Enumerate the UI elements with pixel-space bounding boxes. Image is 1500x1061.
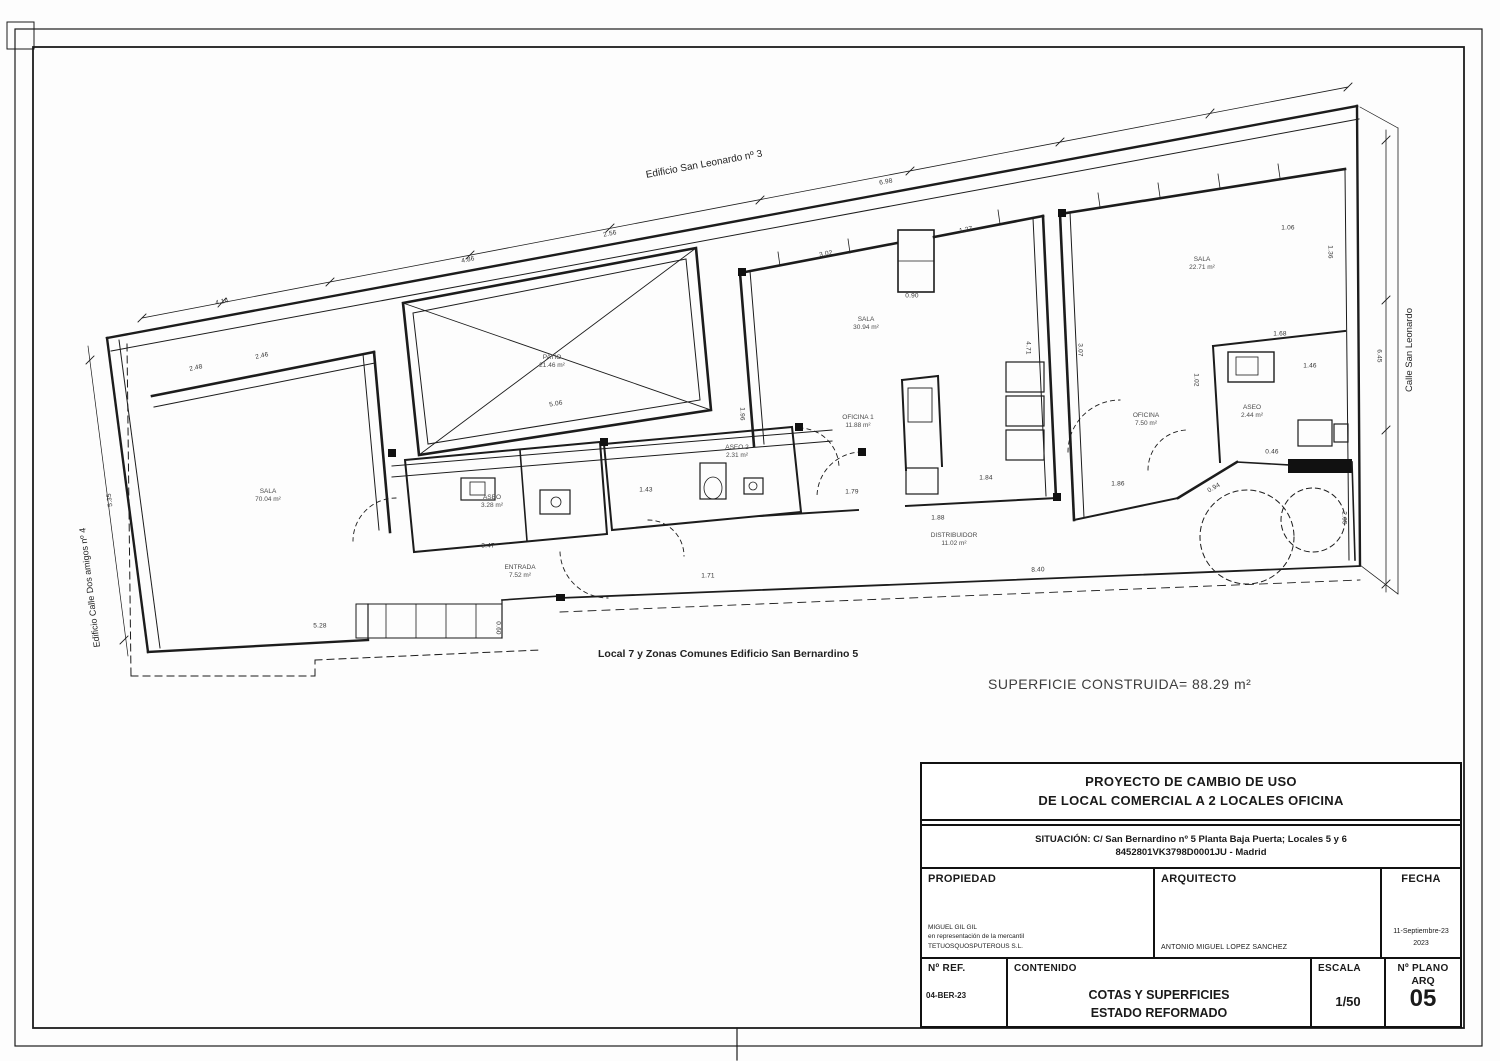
contenido-cell: CONTENIDO COTAS Y SUPERFICIES ESTADO REF… xyxy=(1008,959,1312,1026)
dimension-label: 1.86 xyxy=(1111,481,1124,488)
room-name: ASEO 2 xyxy=(725,444,748,452)
room-label: PATIO 21.46 m² xyxy=(539,354,565,370)
contenido-label: CONTENIDO xyxy=(1014,963,1304,974)
room-name: OFICINA 1 xyxy=(842,414,873,422)
arquitecto-label: ARQUITECTO xyxy=(1161,873,1374,885)
dimension-label: 6.45 xyxy=(1376,349,1383,362)
room-label: SALA 70.04 m² xyxy=(255,488,281,504)
room-name: OFICINA xyxy=(1133,412,1159,420)
room-name: SALA xyxy=(853,316,879,324)
title-block: PROYECTO DE CAMBIO DE USO DE LOCAL COMER… xyxy=(920,762,1462,1028)
room-label: ENTRADA 7.52 m² xyxy=(504,564,535,580)
propiedad-details: MIGUEL GIL GIL en representación de la m… xyxy=(928,923,1024,952)
room-area: 11.88 m² xyxy=(842,422,873,430)
situacion-line1: SITUACIÓN: C/ San Bernardino nº 5 Planta… xyxy=(1035,834,1347,845)
street-right-label: Calle San Leonardo xyxy=(1404,308,1415,392)
title-block-situacion: SITUACIÓN: C/ San Bernardino nº 5 Planta… xyxy=(922,826,1460,869)
room-label: OFICINA 7.50 m² xyxy=(1133,412,1159,428)
drawing-sheet: Edificio San Leonardo nº 3 Calle San Leo… xyxy=(0,0,1500,1061)
fecha-line2: 2023 xyxy=(1382,938,1460,949)
plano-cell: Nº PLANO ARQ 05 xyxy=(1386,959,1460,1026)
propiedad-line1: MIGUEL GIL GIL xyxy=(928,923,1024,933)
dimension-label: 3.47 xyxy=(481,543,494,550)
escala-value: 1/50 xyxy=(1318,994,1378,1009)
ref-cell: Nº REF. 04-BER-23 xyxy=(922,959,1008,1026)
room-name: ASEO xyxy=(1241,404,1263,412)
room-area: 21.46 m² xyxy=(539,362,565,370)
ref-value: 04-BER-23 xyxy=(926,991,966,1000)
dimension-label: 1.06 xyxy=(1281,225,1294,232)
contenido-value: COTAS Y SUPERFICIES ESTADO REFORMADO xyxy=(1014,986,1304,1022)
room-area: 7.52 m² xyxy=(504,572,535,580)
escala-label: ESCALA xyxy=(1318,963,1378,974)
propiedad-line2: en representación de la mercantil xyxy=(928,932,1024,942)
room-area: 2.31 m² xyxy=(725,452,748,460)
room-area: 22.71 m² xyxy=(1189,264,1215,272)
built-area-label: SUPERFICIE CONSTRUIDA= 88.29 m² xyxy=(988,676,1251,692)
propiedad-label: PROPIEDAD xyxy=(928,873,1147,885)
room-name: ENTRADA xyxy=(504,564,535,572)
dimension-label: 3.07 xyxy=(1077,343,1084,356)
arquitecto-cell: ARQUITECTO ANTONIO MIGUEL LOPEZ SANCHEZ xyxy=(1155,869,1382,957)
dimension-label: 1.02 xyxy=(1193,373,1200,386)
fecha-line1: 11-Septiembre-23 xyxy=(1382,926,1460,937)
dimension-label: 1.43 xyxy=(639,487,652,494)
room-label: ASEO 2 2.31 m² xyxy=(725,444,748,460)
project-title-line2: DE LOCAL COMERCIAL A 2 LOCALES OFICINA xyxy=(1038,793,1343,808)
project-title-line1: PROYECTO DE CAMBIO DE USO xyxy=(1085,774,1297,789)
dimension-label: 1.96 xyxy=(739,407,746,420)
room-area: 70.04 m² xyxy=(255,496,281,504)
propiedad-line3: TETUOSQUOSPUTEROUS S.L. xyxy=(928,942,1024,952)
room-name: SALA xyxy=(1189,256,1215,264)
dimension-label: 1.84 xyxy=(979,475,992,482)
room-area: 11.02 m² xyxy=(931,540,978,548)
dimension-label: 8.40 xyxy=(1031,566,1045,573)
room-name: DISTRIBUIDOR xyxy=(931,532,978,540)
situacion-line2: 8452801VK3798D0001JU - Madrid xyxy=(1115,847,1266,858)
dimension-label: 1.71 xyxy=(701,573,714,580)
room-area: 2.44 m² xyxy=(1241,412,1263,420)
fecha-cell: FECHA 11-Septiembre-23 2023 xyxy=(1382,869,1460,957)
ref-label: Nº REF. xyxy=(928,963,1000,974)
room-label: ASEO 2.44 m² xyxy=(1241,404,1263,420)
room-label: OFICINA 1 11.88 m² xyxy=(842,414,873,430)
title-block-project: PROYECTO DE CAMBIO DE USO DE LOCAL COMER… xyxy=(922,764,1460,821)
room-area: 30.94 m² xyxy=(853,324,879,332)
room-name: SALA xyxy=(255,488,281,496)
room-name: PATIO xyxy=(539,354,565,362)
plano-label: Nº PLANO xyxy=(1392,963,1454,974)
contenido-line2: ESTADO REFORMADO xyxy=(1014,1004,1304,1022)
room-label: SALA 30.94 m² xyxy=(853,316,879,332)
dimension-label: 0.60 xyxy=(495,621,502,634)
room-label: DISTRIBUIDOR 11.02 m² xyxy=(931,532,978,548)
plano-number: 05 xyxy=(1392,987,1454,1011)
dimension-label: 1.79 xyxy=(845,489,858,496)
fecha-value: 11-Septiembre-23 2023 xyxy=(1382,926,1460,948)
fecha-label: FECHA xyxy=(1388,873,1454,885)
dimension-label: 5.28 xyxy=(313,623,326,630)
room-area: 7.50 m² xyxy=(1133,420,1159,428)
room-name: ASEO xyxy=(481,494,503,502)
arquitecto-name: ANTONIO MIGUEL LOPEZ SANCHEZ xyxy=(1161,944,1287,951)
room-area: 3.28 m² xyxy=(481,502,503,510)
dimension-label: 4.71 xyxy=(1025,341,1032,354)
dimension-label: 1.36 xyxy=(1327,245,1334,258)
escala-cell: ESCALA 1/50 xyxy=(1312,959,1386,1026)
dimension-label: 2.05 xyxy=(1341,511,1348,524)
dimension-label: 0.90 xyxy=(905,293,918,300)
room-label: ASEO 3.28 m² xyxy=(481,494,503,510)
room-label: SALA 22.71 m² xyxy=(1189,256,1215,272)
dimension-label: 1.68 xyxy=(1273,331,1286,338)
contenido-line1: COTAS Y SUPERFICIES xyxy=(1014,986,1304,1004)
propiedad-cell: PROPIEDAD MIGUEL GIL GIL en representaci… xyxy=(922,869,1155,957)
dimension-label: 1.88 xyxy=(931,515,944,522)
bottom-note-label: Local 7 y Zonas Comunes Edificio San Ber… xyxy=(598,648,858,660)
dimension-label: 0.46 xyxy=(1265,449,1278,456)
dimension-label: 1.46 xyxy=(1303,363,1316,370)
